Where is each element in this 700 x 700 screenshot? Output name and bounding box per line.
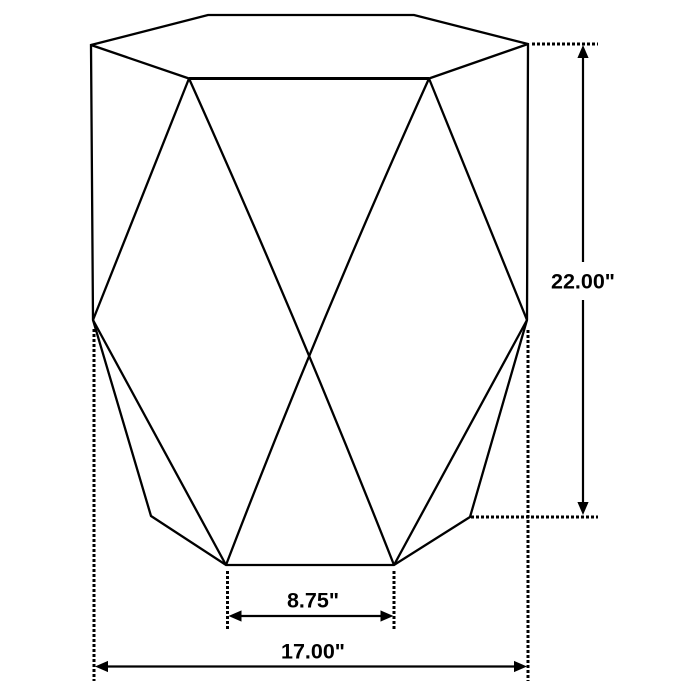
svg-text:22.00": 22.00" xyxy=(551,270,615,294)
svg-text:17.00": 17.00" xyxy=(281,640,345,664)
svg-text:8.75": 8.75" xyxy=(287,588,339,612)
